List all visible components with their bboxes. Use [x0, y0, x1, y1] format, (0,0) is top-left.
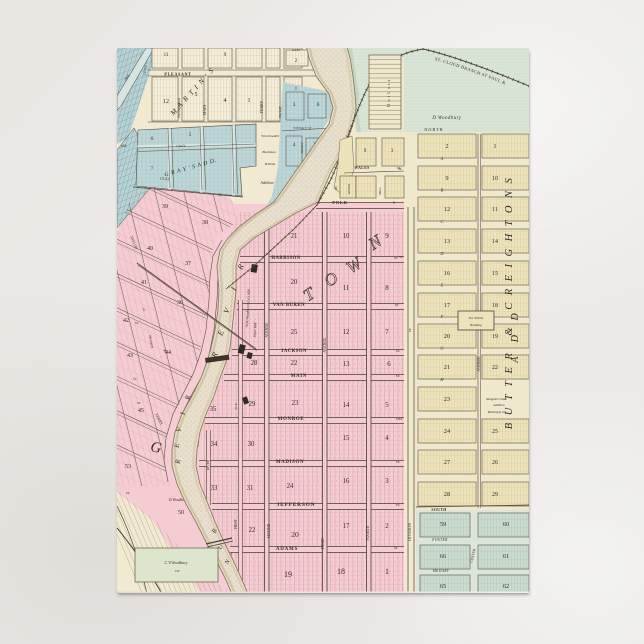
svg-text:24: 24: [444, 428, 451, 435]
svg-text:ST.: ST.: [395, 303, 400, 307]
svg-text:E: E: [440, 282, 444, 287]
svg-text:AVENUE: AVENUE: [477, 356, 481, 372]
svg-text:1: 1: [248, 98, 251, 104]
svg-text:19: 19: [284, 570, 292, 579]
svg-text:16: 16: [343, 478, 350, 485]
svg-text:12: 12: [444, 206, 450, 213]
svg-text:29: 29: [249, 401, 256, 408]
svg-text:34: 34: [211, 441, 218, 448]
svg-text:23: 23: [292, 400, 299, 407]
svg-text:C.V.Woodbury: C.V.Woodbury: [165, 560, 188, 565]
svg-text:30: 30: [248, 441, 255, 448]
svg-text:39: 39: [162, 204, 168, 210]
svg-text:FOSTER: FOSTER: [431, 538, 448, 542]
svg-text:20: 20: [291, 530, 299, 539]
svg-text:6: 6: [317, 102, 320, 108]
svg-text:41: 41: [141, 280, 147, 286]
svg-text:22: 22: [291, 360, 298, 367]
svg-text:25: 25: [291, 329, 298, 336]
svg-text:14: 14: [492, 239, 498, 245]
svg-text:+: +: [163, 347, 167, 355]
svg-text:WHISKY ST.: WHISKY ST.: [293, 126, 313, 130]
svg-text:24: 24: [287, 483, 294, 490]
svg-text:ST.: ST.: [126, 491, 130, 495]
svg-text:65: 65: [440, 583, 446, 590]
svg-text:150: 150: [175, 569, 180, 573]
svg-text:9: 9: [445, 175, 448, 182]
svg-text:13: 13: [343, 361, 350, 368]
svg-text:MEDARY: MEDARY: [432, 569, 450, 573]
svg-text:11: 11: [164, 53, 169, 58]
svg-text:ST.: ST.: [399, 255, 403, 259]
svg-text:ST.: ST.: [294, 86, 298, 90]
svg-text:61: 61: [503, 553, 509, 560]
svg-text:SECOND: SECOND: [267, 523, 271, 538]
svg-text:37: 37: [185, 261, 191, 267]
svg-text:6: 6: [387, 361, 391, 368]
svg-text:JACKSON: JACKSON: [281, 349, 307, 354]
svg-text:FIRST: FIRST: [234, 518, 238, 529]
svg-text:14: 14: [343, 402, 350, 409]
svg-text:PLEASANT: PLEASANT: [164, 72, 191, 77]
svg-text:18: 18: [492, 303, 498, 309]
svg-text:Slaughters Slau: Slaughters Slau: [486, 397, 507, 401]
svg-text:1: 1: [385, 567, 389, 576]
svg-text:21: 21: [291, 233, 298, 240]
svg-text:60: 60: [503, 521, 509, 528]
svg-text:ST.: ST.: [396, 460, 401, 464]
svg-text:ST.: ST.: [408, 327, 412, 332]
svg-text:MILL: MILL: [378, 187, 382, 195]
svg-text:Addition: Addition: [493, 403, 505, 407]
svg-text:3: 3: [385, 478, 389, 485]
svg-text:31: 31: [247, 485, 254, 492]
svg-text:36: 36: [177, 300, 183, 306]
svg-text:Wm Dowdell: Wm Dowdell: [261, 134, 279, 138]
svg-text:2: 2: [445, 143, 448, 150]
svg-text:17: 17: [343, 523, 350, 530]
svg-text:ST.: ST.: [394, 546, 399, 550]
svg-text:7: 7: [385, 329, 389, 336]
svg-text:45: 45: [138, 408, 144, 414]
svg-text:FERRY: FERRY: [259, 101, 264, 114]
svg-text:1: 1: [494, 144, 497, 150]
svg-text:SOUTH: SOUTH: [431, 508, 446, 512]
svg-text:15: 15: [492, 271, 498, 277]
svg-text:MONROE: MONROE: [278, 417, 305, 422]
svg-text:50: 50: [178, 510, 184, 516]
svg-text:11: 11: [492, 207, 498, 213]
svg-text:16: 16: [444, 270, 450, 277]
svg-text:ST.: ST.: [137, 401, 141, 405]
svg-text:AVE.: AVE.: [234, 402, 238, 410]
svg-text:A: A: [440, 156, 444, 161]
svg-text:29: 29: [492, 492, 498, 498]
svg-text:ST.: ST.: [135, 321, 139, 325]
svg-text:62: 62: [503, 583, 509, 590]
svg-text:21: 21: [444, 364, 450, 371]
svg-text:3: 3: [293, 102, 296, 108]
svg-text:MAIN: MAIN: [202, 105, 207, 116]
svg-text:38: 38: [202, 220, 208, 226]
svg-text:ST.: ST.: [396, 349, 401, 353]
svg-text:43: 43: [127, 353, 133, 359]
svg-text:35: 35: [210, 406, 217, 413]
svg-text:ST.: ST.: [399, 417, 403, 421]
svg-text:Building: Building: [470, 323, 482, 327]
svg-text:BUTTER & CREIGHTONS: BUTTER & CREIGHTONS: [504, 171, 515, 429]
svg-text:FOURTH: FOURTH: [366, 525, 370, 540]
svg-text:ADAMS: ADAMS: [276, 547, 298, 552]
svg-text:2: 2: [385, 523, 389, 530]
svg-text:4: 4: [385, 435, 389, 442]
svg-text:S: S: [393, 201, 395, 205]
svg-text:42: 42: [123, 318, 129, 324]
svg-text:Blackman: Blackman: [262, 150, 276, 154]
svg-text:27: 27: [444, 459, 451, 466]
svg-text:Addition: Addition: [259, 181, 273, 185]
svg-text:VAN BUREN: VAN BUREN: [273, 303, 305, 308]
svg-text:4: 4: [224, 98, 227, 104]
svg-text:MADISON: MADISON: [276, 460, 304, 465]
svg-text:ALLEY: ALLEY: [292, 49, 301, 52]
svg-text:25: 25: [492, 429, 498, 435]
svg-text:THIRD: THIRD: [321, 538, 325, 550]
svg-text:RIVER: RIVER: [206, 459, 210, 470]
svg-text:53: 53: [125, 464, 131, 470]
svg-text:ST.: ST.: [396, 374, 401, 378]
svg-text:POLK: POLK: [332, 200, 347, 205]
svg-text:17: 17: [444, 302, 451, 309]
svg-text:40: 40: [147, 246, 153, 252]
svg-text:22: 22: [249, 527, 256, 534]
svg-text:WATER: WATER: [347, 183, 351, 194]
svg-text:F: F: [440, 314, 444, 319]
svg-text:26: 26: [492, 460, 498, 466]
svg-text:JEFFERSON: JEFFERSON: [277, 502, 316, 508]
svg-text:AVENUE: AVENUE: [265, 322, 269, 338]
svg-text:MAIN: MAIN: [291, 374, 307, 379]
svg-text:20: 20: [444, 333, 450, 340]
svg-text:GRAY: GRAY: [176, 144, 186, 148]
svg-text:MAPLE: MAPLE: [300, 143, 304, 154]
svg-text:10: 10: [343, 233, 350, 240]
svg-text:HARRISON: HARRISON: [271, 256, 300, 261]
svg-text:13: 13: [444, 238, 450, 245]
svg-text:8: 8: [385, 285, 389, 292]
svg-text:D.Woodbury: D.Woodbury: [431, 116, 462, 121]
svg-text:59: 59: [440, 521, 446, 528]
svg-text:18: 18: [337, 567, 345, 576]
svg-text:66: 66: [440, 553, 446, 560]
svg-text:33: 33: [211, 485, 218, 492]
svg-text:&White: &White: [265, 162, 276, 166]
svg-text:4: 4: [293, 142, 296, 148]
svg-text:NORTH: NORTH: [424, 127, 443, 132]
svg-text:WALES: WALES: [354, 166, 369, 170]
svg-text:Mississippi lots: Mississippi lots: [487, 410, 507, 414]
svg-text:10: 10: [492, 176, 498, 182]
svg-text:15: 15: [343, 435, 350, 442]
svg-text:12: 12: [163, 99, 169, 105]
svg-text:11: 11: [343, 285, 350, 292]
svg-text:C: C: [441, 219, 444, 224]
svg-text:DIVISION: DIVISION: [407, 523, 412, 541]
svg-text:28: 28: [444, 491, 450, 498]
svg-text:Paper Mill: Paper Mill: [253, 322, 258, 338]
svg-text:28: 28: [251, 360, 258, 367]
svg-text:12: 12: [343, 329, 350, 336]
svg-text:B: B: [441, 188, 444, 193]
svg-text:O u t L o t s: O u t L o t s: [386, 79, 391, 107]
svg-text:AVENUE: AVENUE: [323, 337, 327, 353]
svg-text:23: 23: [444, 396, 450, 403]
svg-text:5: 5: [385, 402, 389, 409]
svg-text:20: 20: [291, 279, 298, 286]
svg-text:A D D: A D D: [510, 307, 521, 363]
svg-text:For Public: For Public: [468, 316, 484, 320]
svg-text:5: 5: [195, 92, 198, 98]
svg-text:19: 19: [492, 334, 498, 340]
svg-text:ST.: ST.: [398, 167, 402, 171]
svg-text:ST.: ST.: [396, 503, 401, 507]
svg-text:22: 22: [492, 365, 498, 371]
svg-text:9: 9: [385, 233, 389, 240]
